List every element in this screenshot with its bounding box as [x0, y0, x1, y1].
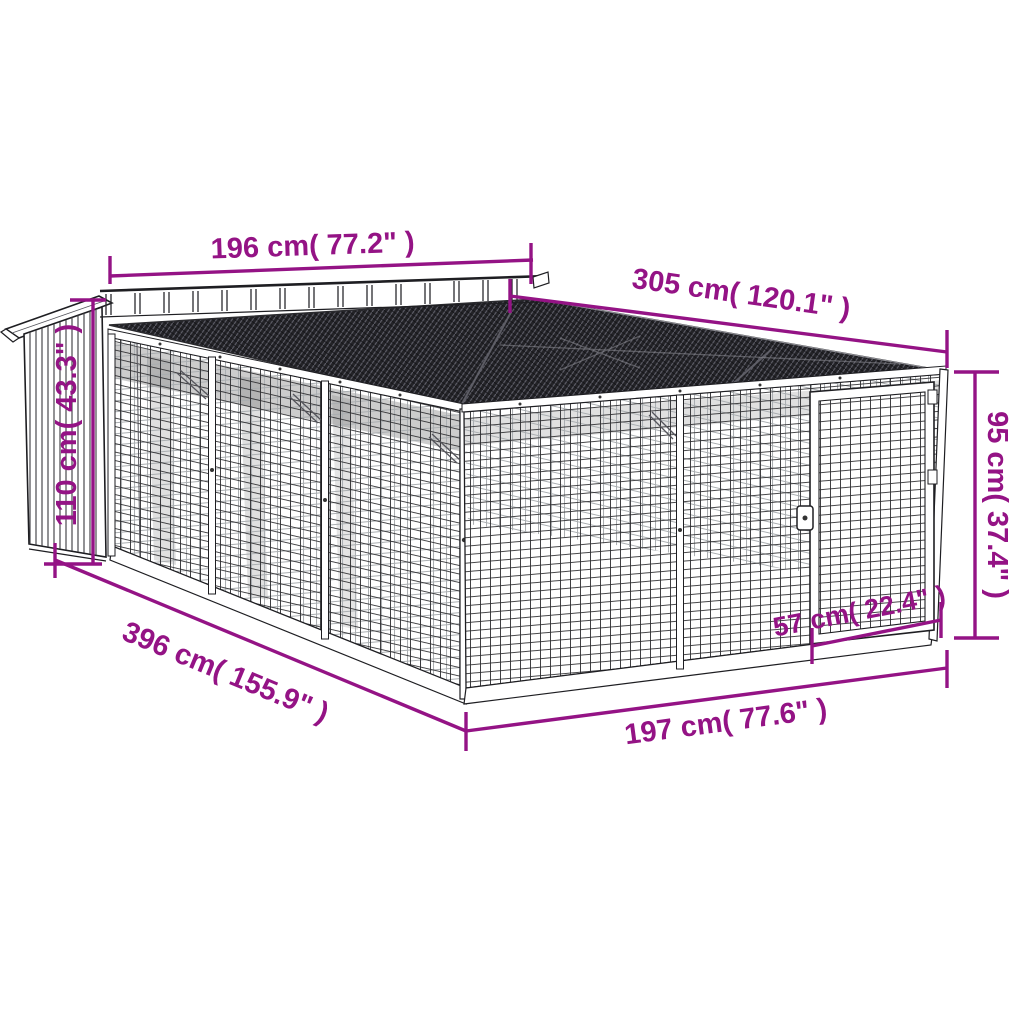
- bolt: [519, 403, 522, 406]
- rail-end-cap: [533, 272, 549, 288]
- bolt: [679, 390, 682, 393]
- door-latch-pin: [803, 516, 808, 521]
- dimension-house-height-label: 110 cm( 43.3" ): [51, 324, 83, 526]
- run-end-wall: [462, 366, 948, 704]
- front-wall-corner-post-left: [108, 334, 115, 556]
- dimension-run-height-label: 95 cm( 37.4" ): [981, 411, 1013, 599]
- bolt: [219, 356, 222, 359]
- dimension-front-width-label: 197 cm( 77.6" ): [623, 693, 829, 751]
- kennel-dimension-diagram: 196 cm( 77.2" ) 305 cm( 120.1" ) 110 cm(…: [0, 0, 1024, 1024]
- dimension-roof-width-label: 196 cm( 77.2" ): [210, 226, 415, 265]
- diagram-stage: 196 cm( 77.2" ) 305 cm( 120.1" ) 110 cm(…: [0, 0, 1024, 1024]
- bolt: [839, 377, 842, 380]
- bolt: [759, 384, 762, 387]
- door-hinge-top: [928, 390, 937, 404]
- bolt: [159, 343, 162, 346]
- bolt: [279, 368, 282, 371]
- front-wall-post-2: [322, 381, 329, 639]
- bolt: [210, 468, 214, 472]
- dimension-roof-width: 196 cm( 77.2" ): [110, 226, 533, 284]
- front-wall-post-1: [209, 357, 216, 594]
- bolt: [339, 381, 342, 384]
- bolt: [599, 396, 602, 399]
- door-hinge-bottom: [928, 470, 937, 484]
- dimension-run-height: 95 cm( 37.4" ): [954, 372, 1013, 638]
- bolt: [323, 498, 327, 502]
- bolt: [399, 394, 402, 397]
- bolt: [678, 528, 682, 532]
